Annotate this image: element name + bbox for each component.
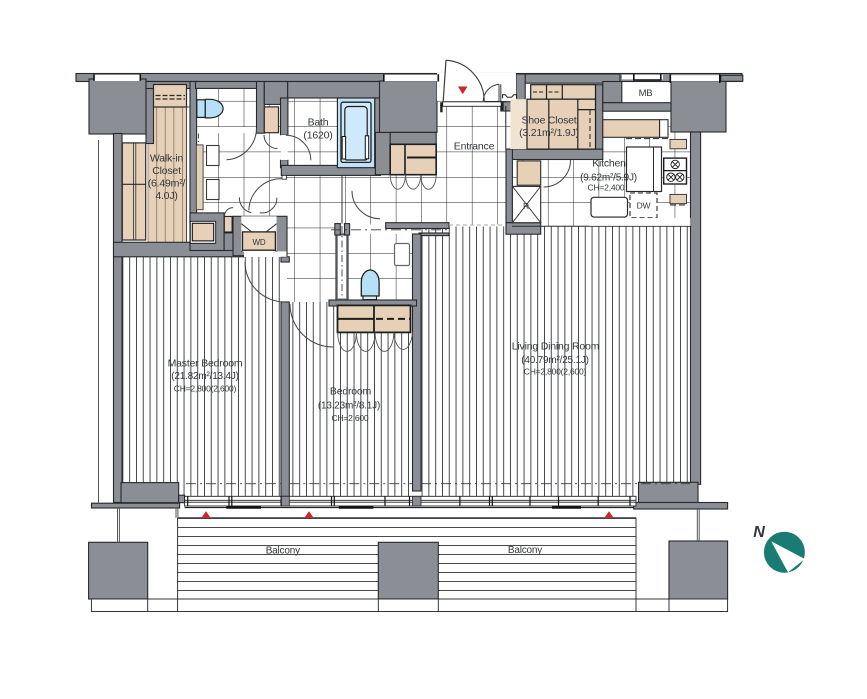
svg-text:4.0J): 4.0J) [155, 190, 177, 202]
svg-text:CH=2,800(2,600): CH=2,800(2,600) [174, 384, 237, 394]
svg-text:DW: DW [637, 201, 651, 211]
svg-text:Shoe Closet: Shoe Closet [521, 115, 576, 127]
svg-text:MB: MB [639, 88, 653, 99]
svg-text:Living Dining Room: Living Dining Room [512, 341, 600, 353]
svg-text:Balcony: Balcony [508, 545, 542, 556]
svg-text:CH=2,400: CH=2,400 [588, 183, 625, 193]
svg-text:(13.23m²/8.1J): (13.23m²/8.1J) [318, 401, 380, 412]
svg-text:Master Bedroom: Master Bedroom [168, 358, 243, 370]
svg-text:Bath: Bath [308, 117, 329, 129]
svg-text:CH=2,600: CH=2,600 [332, 413, 369, 423]
svg-text:Bedroom: Bedroom [330, 386, 372, 398]
svg-text:Closet: Closet [152, 165, 181, 177]
svg-text:Kitchen: Kitchen [592, 158, 626, 170]
svg-text:N: N [753, 524, 765, 541]
svg-text:Walk-in: Walk-in [150, 153, 184, 165]
svg-text:Entrance: Entrance [454, 141, 495, 153]
svg-text:(40.79m²/25.1J): (40.79m²/25.1J) [521, 355, 589, 366]
svg-text:(1620): (1620) [303, 130, 332, 142]
svg-text:R: R [523, 201, 529, 211]
svg-text:WD: WD [253, 238, 266, 247]
svg-text:Balcony: Balcony [266, 546, 300, 557]
svg-text:(3.21m²/1.9J): (3.21m²/1.9J) [519, 127, 579, 139]
svg-text:CH=2,800(2,600): CH=2,800(2,600) [524, 367, 587, 377]
svg-text:(6.49m²/: (6.49m²/ [148, 178, 186, 190]
svg-text:(21.82m²/13.4J): (21.82m²/13.4J) [171, 371, 239, 382]
